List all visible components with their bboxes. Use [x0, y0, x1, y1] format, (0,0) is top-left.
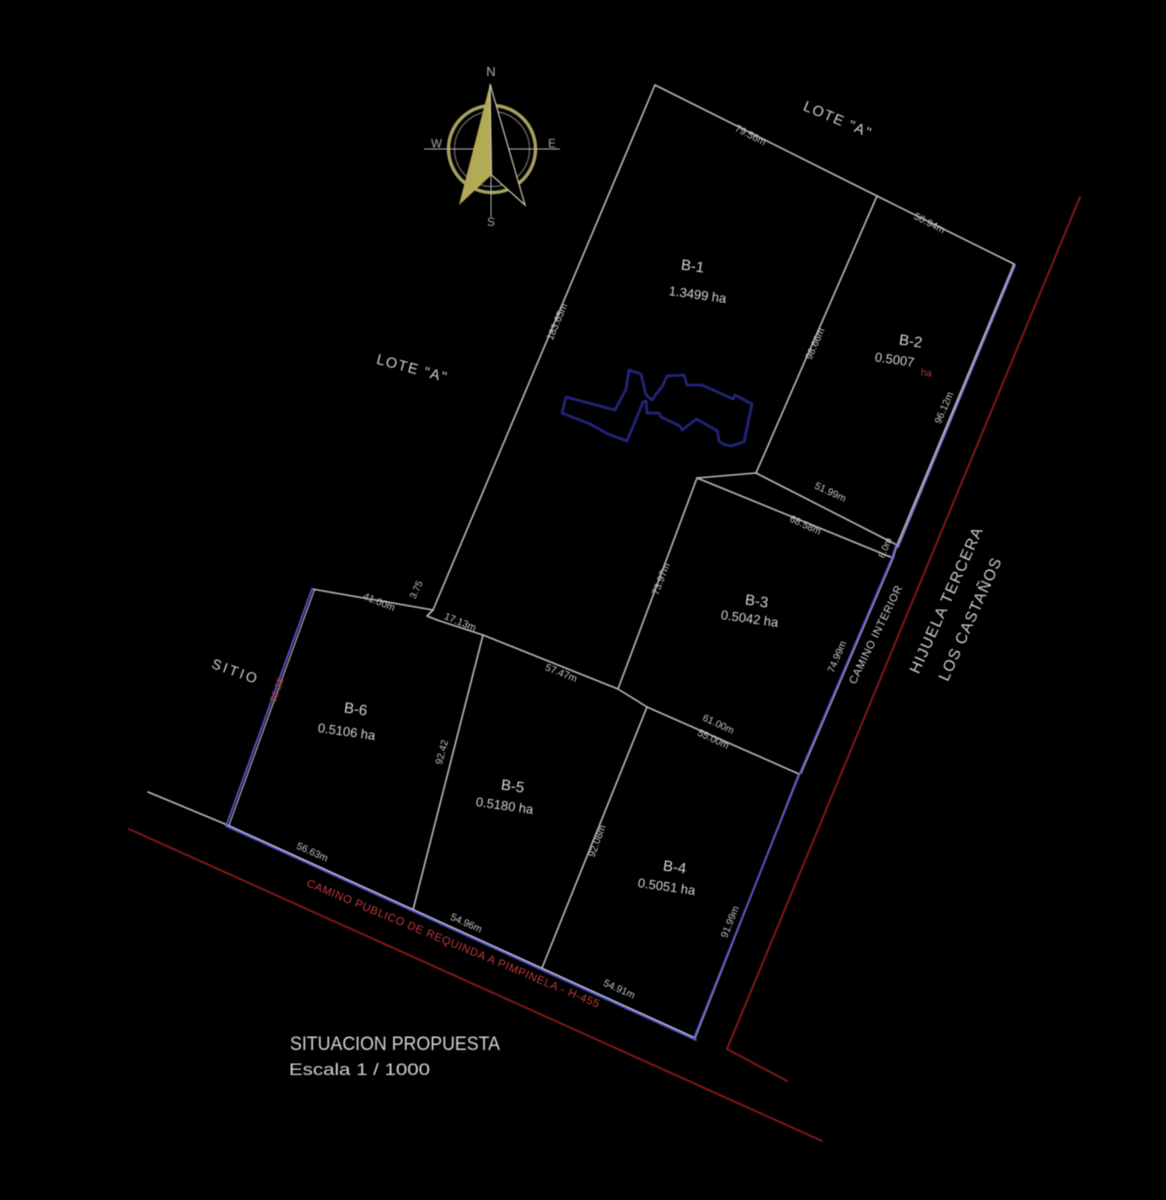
- svg-text:E: E: [548, 139, 556, 151]
- svg-text:B-1: B-1: [680, 257, 705, 277]
- svg-text:S: S: [487, 217, 495, 229]
- svg-text:Escala 1 / 1000: Escala 1 / 1000: [289, 1060, 430, 1079]
- svg-text:B-6: B-6: [343, 700, 368, 720]
- svg-text:B-3: B-3: [744, 592, 769, 612]
- svg-text:W: W: [431, 139, 442, 151]
- svg-text:N: N: [486, 64, 495, 79]
- svg-text:B-4: B-4: [662, 858, 687, 878]
- svg-text:B-5: B-5: [500, 777, 525, 797]
- svg-text:SITUACION PROPUESTA: SITUACION PROPUESTA: [290, 1033, 500, 1055]
- svg-text:B-2: B-2: [898, 332, 923, 352]
- svg-text:ha: ha: [920, 367, 933, 380]
